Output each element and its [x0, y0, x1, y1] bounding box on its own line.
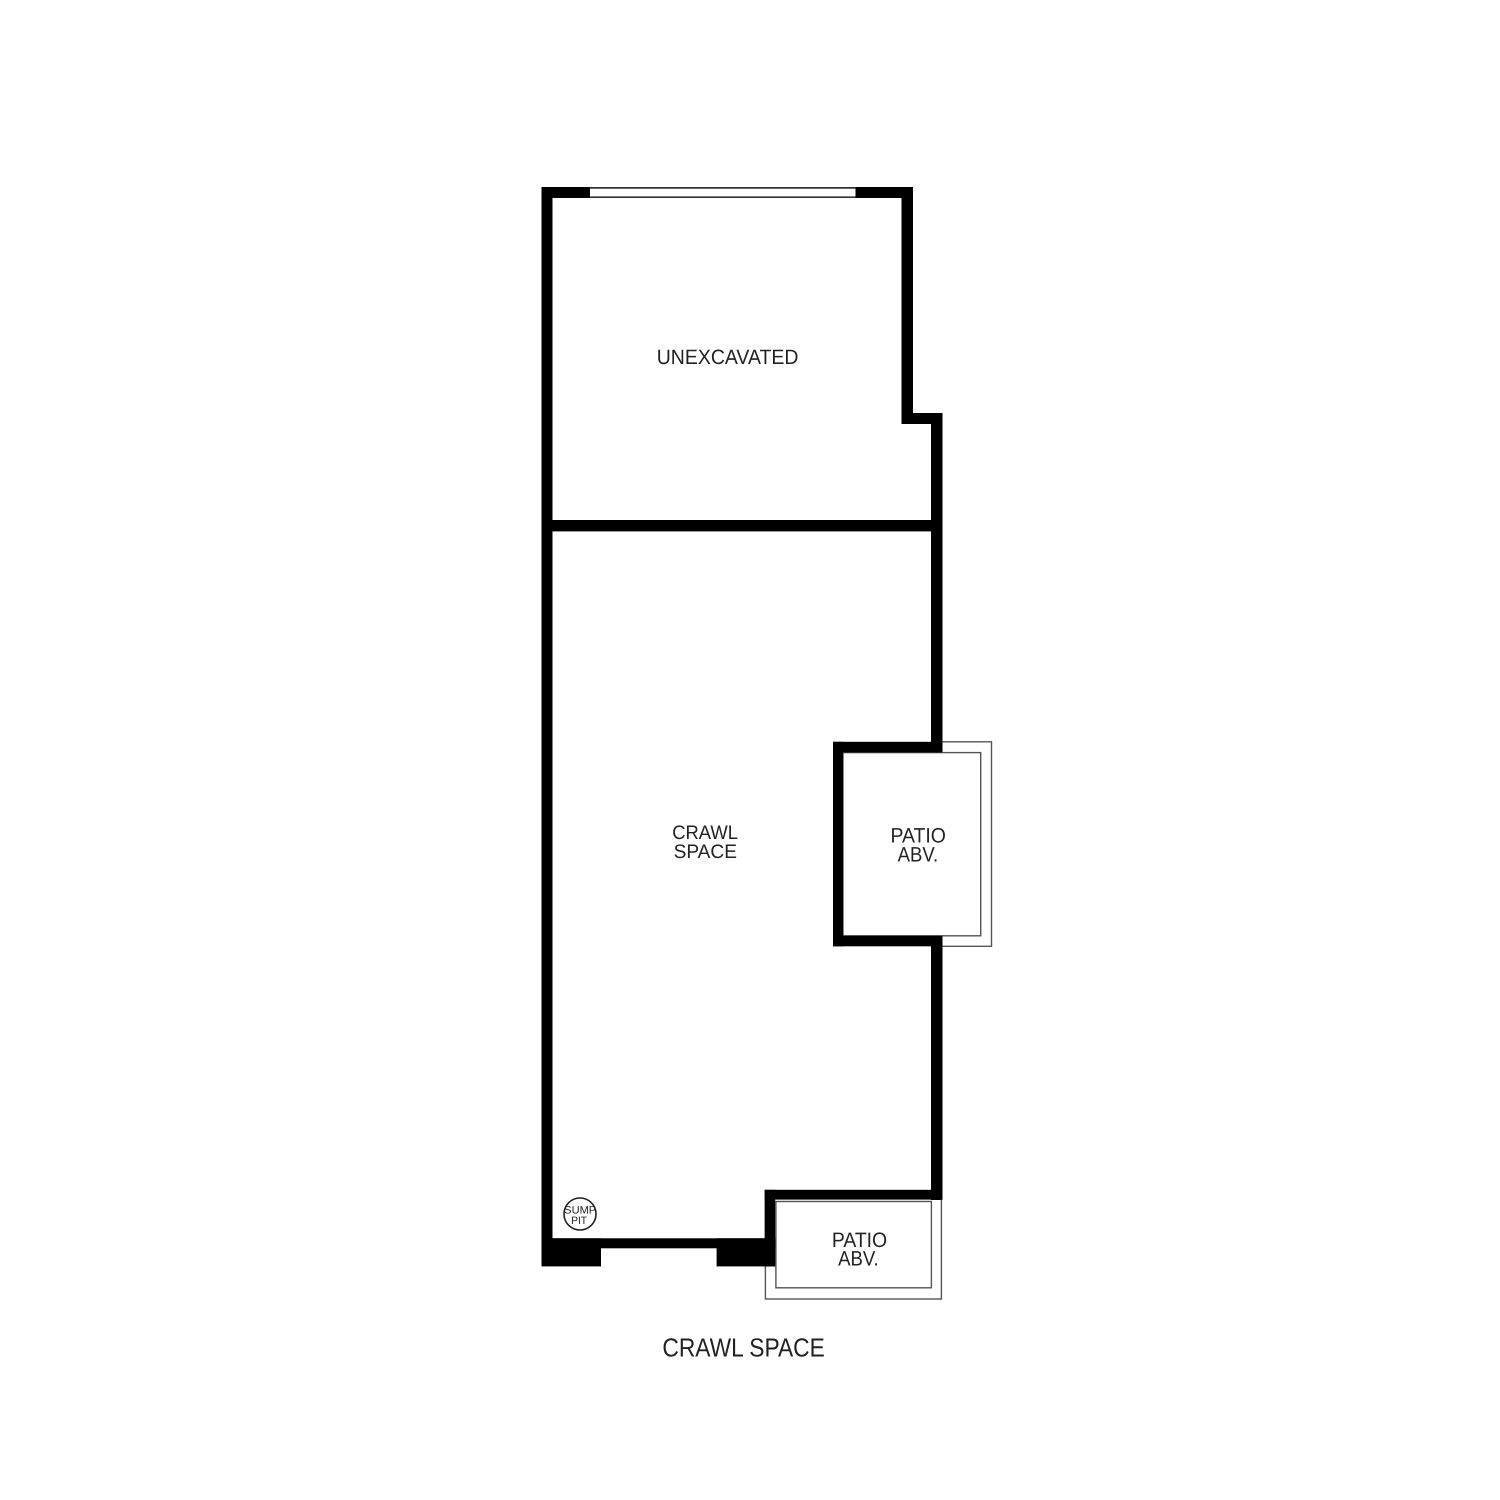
svg-text:CRAWL SPACE: CRAWL SPACE — [662, 1333, 824, 1363]
svg-text:ABV.: ABV. — [898, 843, 939, 866]
svg-text:ABV.: ABV. — [838, 1247, 879, 1270]
svg-text:SPACE: SPACE — [674, 841, 737, 863]
svg-text:PIT: PIT — [571, 1215, 587, 1227]
svg-text:UNEXCAVATED: UNEXCAVATED — [657, 346, 799, 369]
